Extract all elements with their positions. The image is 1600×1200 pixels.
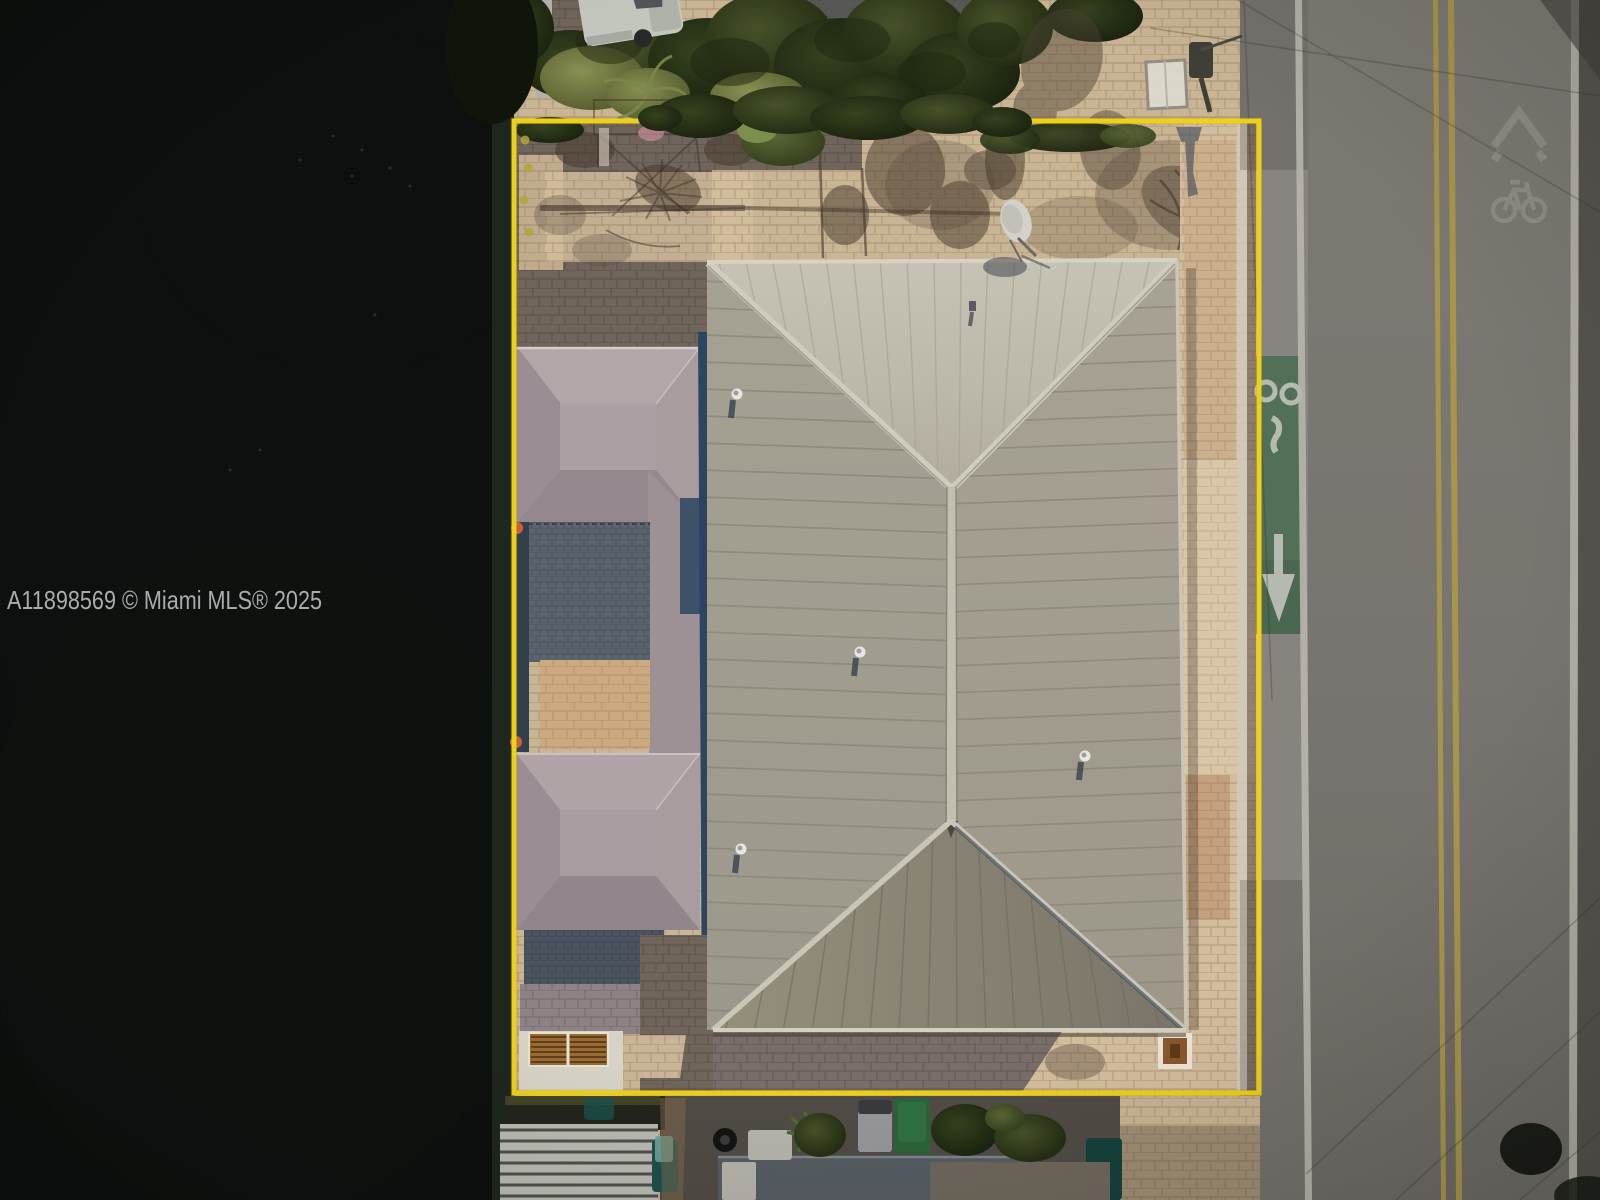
- svg-text:A11898569 © Miami MLS® 2025: A11898569 © Miami MLS® 2025: [7, 585, 322, 615]
